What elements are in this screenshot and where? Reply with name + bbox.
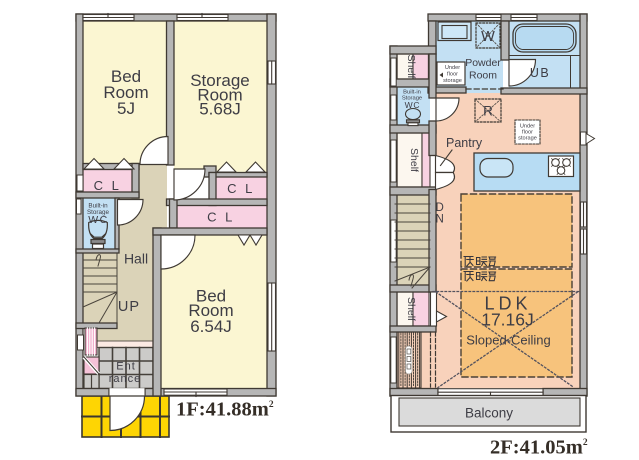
svg-text:storage: storage [443,78,462,84]
svg-text:UB: UB [530,66,550,80]
svg-text:6.54J: 6.54J [190,317,232,336]
svg-text:Powder: Powder [465,57,501,69]
svg-text:Room: Room [469,70,497,82]
svg-text:2F:41.05m2: 2F:41.05m2 [490,437,588,459]
svg-text:5.68J: 5.68J [199,100,241,119]
svg-text:Hall: Hall [124,251,148,267]
svg-text:Shelf: Shelf [405,55,417,79]
svg-text:Shelf: Shelf [405,297,417,321]
svg-text:17.16J: 17.16J [481,310,534,330]
svg-text:Sloped-Ceiling: Sloped-Ceiling [466,333,551,348]
svg-text:UP: UP [118,299,140,315]
svg-text:Balcony: Balcony [465,406,513,421]
svg-text:W: W [481,29,495,45]
svg-text:Ent: Ent [116,361,136,373]
svg-text:C L: C L [94,178,122,193]
svg-text:Pantry: Pantry [446,136,483,150]
svg-text:WC: WC [405,100,421,110]
svg-text:5J: 5J [117,99,135,118]
svg-text:floor: floor [447,72,458,78]
svg-text:C L: C L [207,210,235,225]
svg-text:Shelf: Shelf [408,148,420,172]
svg-text:C L: C L [227,181,255,196]
svg-text:rance: rance [109,373,142,385]
svg-text:R: R [483,104,493,119]
svg-text:D: D [436,202,444,214]
svg-text:WC: WC [88,214,109,226]
svg-text:Under: Under [445,65,460,71]
svg-text:1F:41.88m2: 1F:41.88m2 [176,399,274,421]
svg-text:storage: storage [518,136,537,142]
svg-text:N: N [436,214,444,226]
